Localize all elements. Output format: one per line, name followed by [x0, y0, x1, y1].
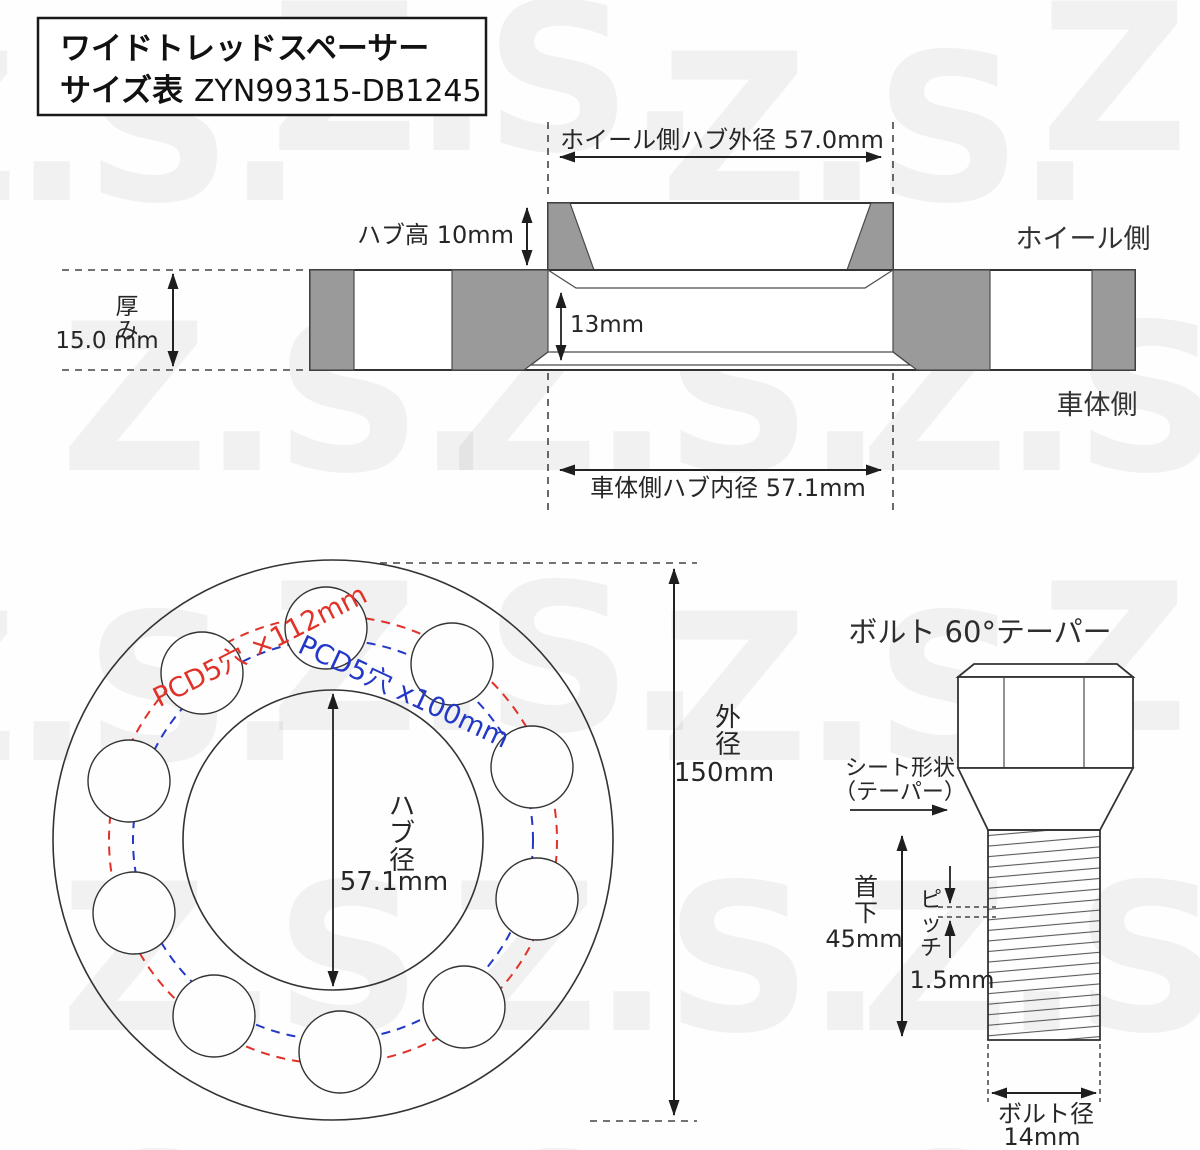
wheel-side-label: ホイール側 — [1016, 224, 1151, 255]
plate-gray-band — [1092, 270, 1135, 370]
dim-value-hub-dia: 57.1mm — [340, 867, 449, 897]
bolt-hole — [299, 1011, 381, 1093]
bolt-title: ボルト 60°テーパー — [848, 615, 1111, 649]
body-side-label: 車体側 — [1057, 390, 1138, 421]
bolt-head-top — [958, 664, 1133, 677]
dim-label-hub-height: ハブ高 10mm — [357, 221, 514, 249]
dim-value-shank: 45mm — [825, 925, 902, 953]
plate-gray-band — [893, 270, 990, 370]
dim-label-hub-dia: ハブ径 — [389, 792, 415, 876]
dim-label-shank: 首下 — [854, 873, 878, 927]
product-title: ワイドトレッドスペーサー — [60, 31, 429, 67]
bolt-head — [958, 677, 1133, 768]
watermark-text: Z.S. — [270, 1111, 698, 1150]
plate-gray-band — [452, 270, 548, 370]
dim-label-hub-inner: 車体側ハブ内径 57.1mm — [590, 474, 866, 502]
bolt-hole — [88, 740, 170, 822]
spec-diagram: Z.S. Z.S. Z.S. Z.S. Z.S. Z.S. Z.S. Z.S. … — [0, 0, 1200, 1150]
bolt-hole — [496, 858, 578, 940]
dim-value-outer-dia: 150mm — [674, 758, 774, 788]
watermark-text: Z.S. — [0, 1111, 298, 1150]
dim-label-bore-depth: 13mm — [570, 312, 644, 338]
bolt-taper-seat — [958, 768, 1133, 830]
dim-label-outer-dia: 外径 — [715, 703, 741, 760]
size-table-label: サイズ表 — [60, 73, 183, 109]
plate-gray-band — [310, 270, 354, 370]
dim-label-hub-outer: ホイール側ハブ外径 57.0mm — [560, 126, 884, 154]
seat-shape-label: シート形状 — [845, 756, 955, 781]
dim-value-bolt-dia: 14mm — [1003, 1123, 1080, 1150]
dim-value-thickness: 15.0 mm — [55, 328, 158, 354]
bolt-hole — [423, 966, 505, 1048]
dim-label-pitch: ピッチ — [920, 888, 942, 961]
bolt-thread — [988, 830, 1100, 1040]
bolt-hole — [173, 975, 255, 1057]
watermark-text: Z.S. — [1040, 0, 1200, 199]
spacer-plate — [310, 270, 1135, 370]
bolt-hole — [93, 872, 175, 954]
title-box: ワイドトレッドスペーサー サイズ表 ZYN99315-DB1245 — [38, 18, 486, 115]
spec-sheet-canvas: Z.S. Z.S. Z.S. Z.S. Z.S. Z.S. Z.S. Z.S. … — [0, 0, 1200, 1150]
dim-value-pitch: 1.5mm — [910, 966, 995, 994]
seat-shape-label2: （テーパー） — [834, 780, 966, 805]
hub-block — [548, 203, 893, 270]
part-number: ZYN99315-DB1245 — [194, 74, 482, 109]
